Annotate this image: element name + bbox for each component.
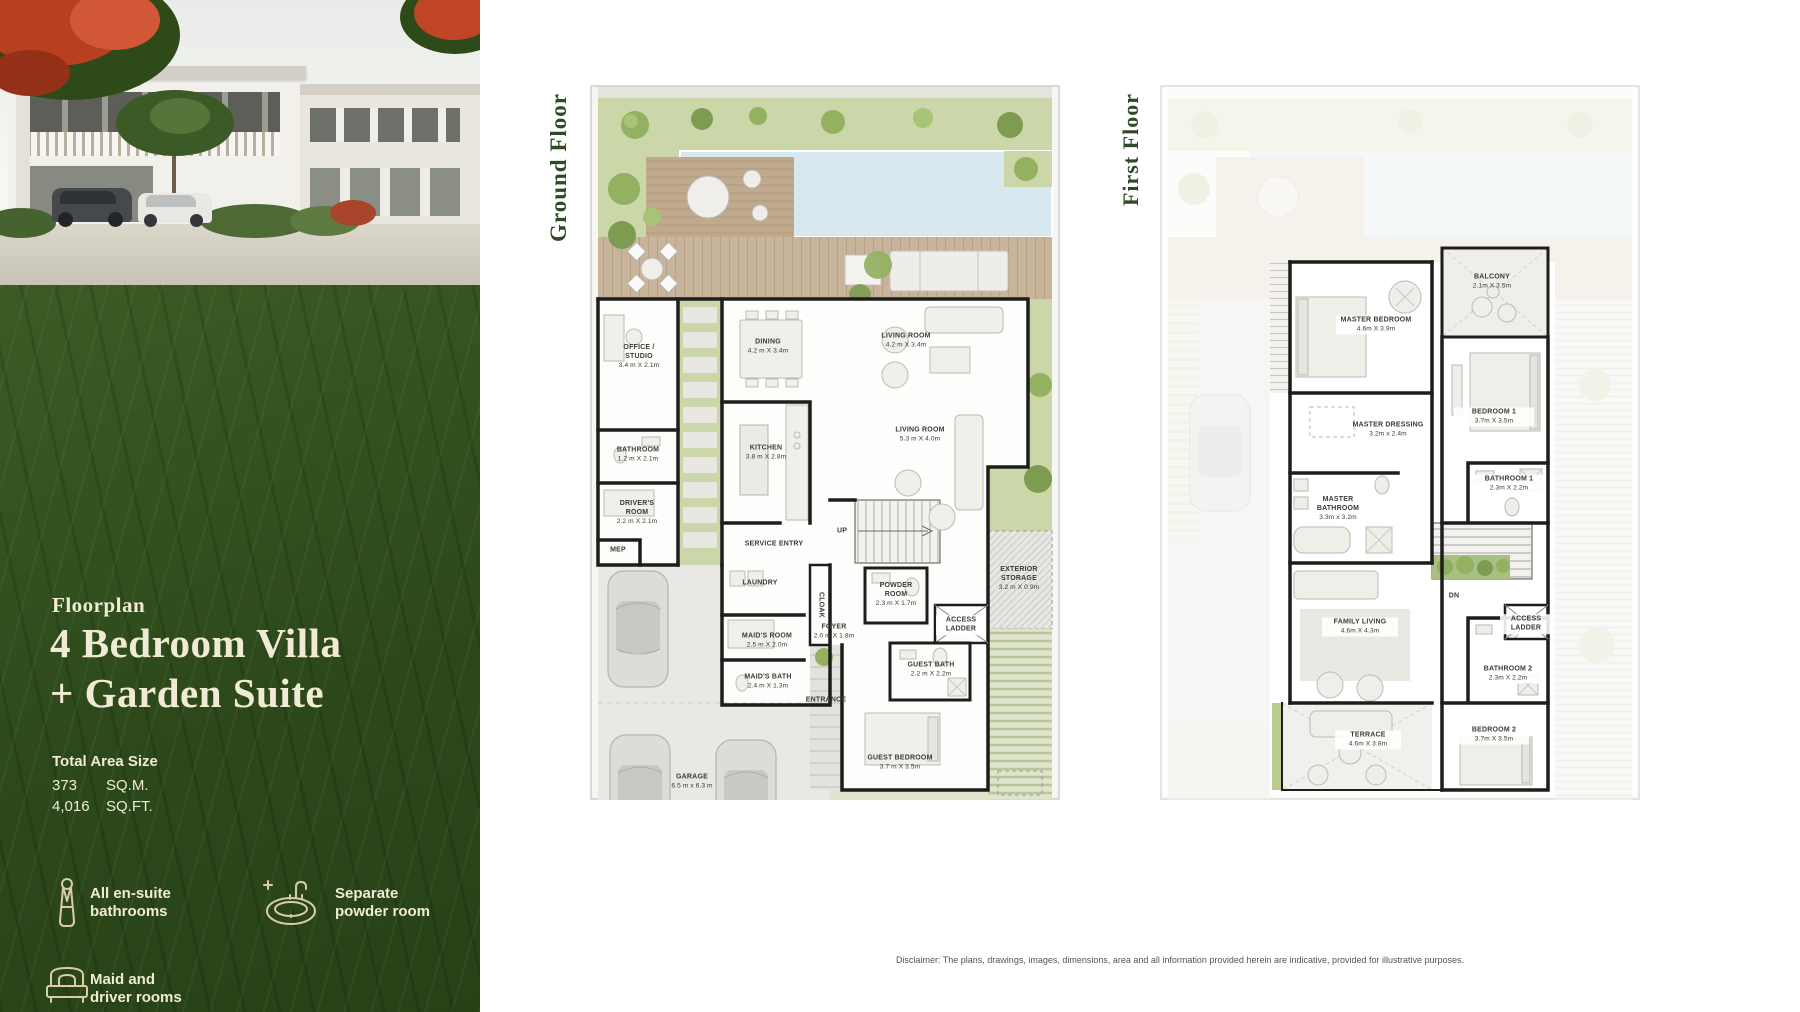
room-label-master-dressing: MASTER DRESSING3.2m x 2.4m (1350, 422, 1426, 439)
room-label-balcony: BALCONY2.1m X 3.5m (1454, 274, 1530, 291)
terrace-deck (598, 237, 1052, 299)
room-label-family-living: FAMILY LIVING4.6m X 4.3m (1322, 618, 1398, 637)
room-label-master-bathroom: MASTER BATHROOM3.3m x 3.2m (1303, 496, 1373, 522)
pool-deck (646, 157, 794, 243)
room-label-up: UP (830, 528, 854, 537)
room-label-terrace: TERRACE4.6m X 3.8m (1335, 731, 1401, 750)
sqft-unit: SQ.FT. (106, 798, 153, 815)
room-label-powder-room: POWDER ROOM2.3 m X 1.7m (868, 582, 924, 608)
first-floor-drawing (1160, 85, 1640, 800)
building-back-windows (310, 108, 460, 142)
info-panel: Floorplan 4 Bedroom Villa + Garden Suite… (0, 285, 480, 1012)
room-label-laundry: LAUNDRY (730, 580, 790, 589)
page-title-line2: + Garden Suite (50, 669, 324, 717)
white-car-cabin (146, 195, 196, 207)
ground-floor-drawing (590, 85, 1060, 800)
brochure-page: Floorplan 4 Bedroom Villa + Garden Suite… (0, 0, 1800, 1012)
ground-floor-title: Ground Floor (546, 93, 572, 242)
suv-wheel-1 (58, 212, 73, 227)
car-icon (716, 740, 776, 800)
car-icon (608, 571, 668, 687)
ground-floor-plan: OFFICE / STUDIO3.4 m X 2.1m BATHROOM1.2 … (590, 85, 1060, 800)
room-label-bathroom-2: BATHROOM 22.3m X 2.2m (1473, 665, 1543, 684)
hero-photo (0, 0, 480, 285)
total-area-heading: Total Area Size (52, 753, 158, 770)
entrance-walk (810, 645, 842, 790)
room-label-bedroom-2: BEDROOM 23.7m X 3.5m (1459, 726, 1529, 745)
room-label-dining: DINING4.2 m X 3.4m (735, 339, 801, 356)
room-label-dn: DN (1442, 593, 1466, 602)
room-label-living-room-2: LIVING ROOM5.3 m X 4.0m (884, 427, 956, 444)
room-label-kitchen: KITCHEN3.8 m X 2.8m (734, 445, 798, 462)
stairs-up (855, 500, 940, 563)
room-label-maids-bath: MAID'S BATH2.4 m X 1.3m (735, 674, 801, 691)
red-shrub (330, 200, 376, 226)
sidebar: Floorplan 4 Bedroom Villa + Garden Suite… (0, 0, 480, 1012)
disclaimer-text: Disclaimer: The plans, drawings, images,… (830, 955, 1530, 965)
suv-wheel-2 (108, 212, 123, 227)
sqm-value: 373 (52, 777, 106, 794)
side-garden-walkway (678, 299, 722, 565)
page-title-line1: 4 Bedroom Villa (50, 619, 341, 667)
sqm-unit: SQ.M. (106, 777, 149, 794)
room-label-access-ladder: ACCESS LADDER (936, 615, 986, 635)
floorplan-eyebrow: Floorplan (52, 593, 145, 618)
room-label-mep: MEP (600, 547, 636, 556)
building-main-column (16, 96, 30, 224)
building-back-roof (284, 84, 480, 95)
sqft-value: 4,016 (52, 798, 106, 815)
room-label-master-bedroom: MASTER BEDROOM4.6m X 3.9m (1336, 316, 1416, 335)
room-label-entrance: ENTRANCE (796, 697, 856, 706)
stairs-down (1432, 523, 1532, 579)
room-label-living-room-1: LIVING ROOM4.2 m X 3.4m (870, 333, 942, 350)
room-label-cloak: CLOAK (816, 592, 825, 618)
room-label-service-entry: SERVICE ENTRY (744, 541, 804, 550)
bed-icon (44, 965, 90, 1007)
room-label-guest-bedroom: GUEST BEDROOM3.7 m X 3.5m (867, 755, 933, 772)
total-area-sqm: 373 SQ.M. (52, 777, 149, 794)
room-label-office-studio: OFFICE / STUDIO3.4 m X 2.1m (611, 344, 667, 370)
room-label-bathroom-1: BATHROOM 12.3m X 2.2m (1474, 475, 1544, 494)
room-label-access-ladder-ff: ACCESS LADDER (1500, 614, 1552, 634)
room-label-bedroom-1: BEDROOM 13.7m X 3.5m (1454, 408, 1534, 427)
room-label-maids-room: MAID'S ROOM2.5 m X 2.0m (734, 633, 800, 650)
room-label-drivers-room: DRIVER'S ROOM2.2 m X 2.1m (609, 500, 665, 526)
green-tree-light (150, 98, 210, 134)
feature-ensuite-label: All en-suite bathrooms (90, 885, 171, 921)
feature-maid-label: Maid and driver rooms (90, 971, 182, 1007)
room-label-foyer: FOYER2.0 m X 1.8m (804, 624, 864, 641)
room-label-bathroom: BATHROOM1.2 m X 2.1m (607, 447, 669, 464)
room-label-garage: GARAGE6.5 m x 6.3 m (657, 774, 727, 791)
room-label-exterior-storage: EXTERIOR STORAGE3.2 m X 0.9m (992, 566, 1046, 592)
room-label-guest-bath: GUEST BATH2.2 m X 2.2m (895, 662, 967, 679)
first-floor-title: First Floor (1118, 93, 1144, 206)
white-car-wheel-1 (144, 214, 157, 227)
sink-icon (260, 875, 322, 929)
bathrobe-icon (52, 877, 82, 931)
total-area-sqft: 4,016 SQ.FT. (52, 798, 153, 815)
white-car-wheel-2 (190, 214, 203, 227)
suv-cabin (60, 191, 116, 204)
first-floor-plan: MASTER BEDROOM4.6m X 3.9m BALCONY2.1m X … (1160, 85, 1640, 800)
feature-powder-label: Separate powder room (335, 885, 430, 921)
